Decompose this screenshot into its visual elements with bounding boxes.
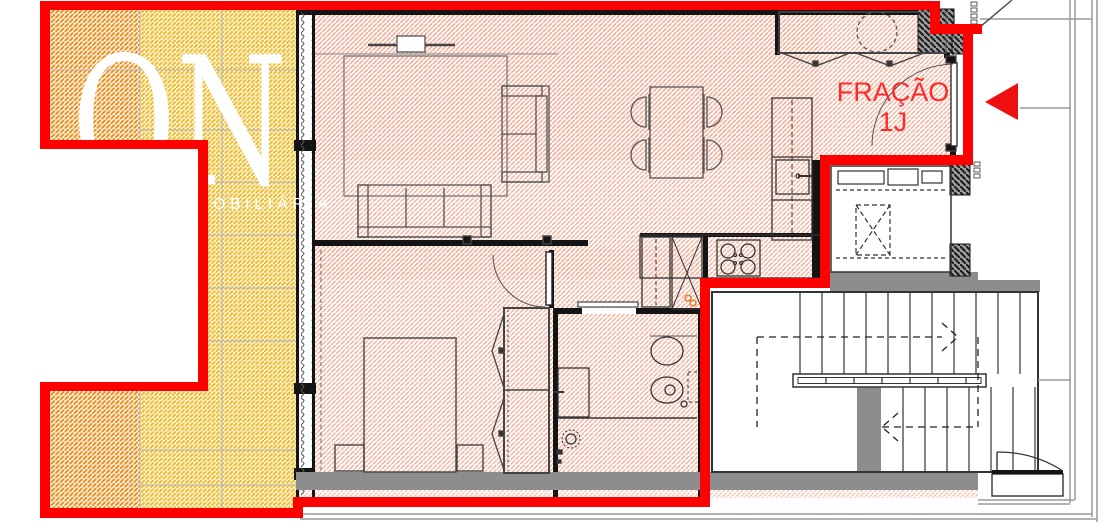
left-wall-inner-rail bbox=[312, 9, 315, 497]
fraction-label-line2: 1J bbox=[879, 107, 908, 137]
bathroom-sliding-door bbox=[578, 302, 638, 307]
entrance-arrow-icon bbox=[985, 83, 1018, 120]
bottom-exterior-wall bbox=[296, 472, 978, 490]
left-wall-insulation bbox=[301, 12, 312, 495]
bathroom-left-wall bbox=[553, 308, 558, 498]
stair-mid-wall bbox=[857, 387, 881, 472]
stair-handrail bbox=[793, 374, 986, 387]
stair-up-arrow-icon bbox=[942, 323, 958, 351]
left-wall-outer-rail bbox=[296, 9, 299, 497]
tv bbox=[397, 36, 425, 52]
watermark-tagline: MEDIAÇÃO IMOBILIÁRIA bbox=[55, 193, 333, 213]
floor-plan-drawing: ON MEDIAÇÃO IMOBILIÁRIA FRAÇÃO 1J bbox=[0, 0, 1112, 531]
bathroom-door-opening bbox=[582, 308, 636, 314]
stair-steps-lower bbox=[903, 387, 1035, 472]
fraction-label-line1: FRAÇÃO bbox=[837, 76, 950, 107]
watermark-brand: ON bbox=[72, 19, 287, 226]
stair-steps-upper bbox=[800, 292, 1020, 374]
kitchen-east-wall bbox=[812, 160, 821, 283]
balcony-orange-bottom bbox=[50, 391, 140, 509]
floor-plan-page: ON MEDIAÇÃO IMOBILIÁRIA FRAÇÃO 1J bbox=[0, 0, 1112, 531]
structural-column bbox=[950, 244, 970, 276]
elevator-shaft bbox=[831, 166, 951, 272]
stair-exit-door bbox=[992, 452, 1063, 496]
structural-column bbox=[950, 163, 970, 195]
